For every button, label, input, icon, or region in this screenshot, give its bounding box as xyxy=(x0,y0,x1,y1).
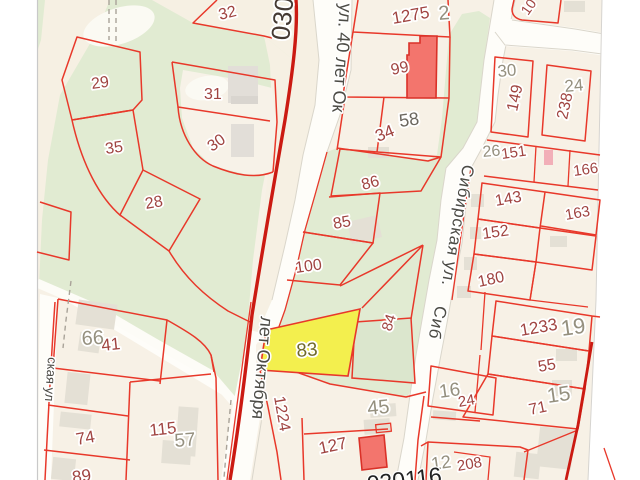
svg-text:24: 24 xyxy=(564,75,585,96)
svg-text:ская ул: ская ул xyxy=(42,357,60,402)
svg-text:35: 35 xyxy=(104,139,124,158)
svg-text:19: 19 xyxy=(559,313,587,341)
svg-text:26: 26 xyxy=(482,142,501,160)
svg-text:74: 74 xyxy=(74,427,96,449)
svg-text:57: 57 xyxy=(174,429,197,452)
svg-text:15: 15 xyxy=(545,382,571,408)
svg-text:89: 89 xyxy=(71,466,92,480)
svg-text:55: 55 xyxy=(537,356,558,376)
svg-text:99: 99 xyxy=(389,59,410,79)
svg-text:115: 115 xyxy=(148,418,177,440)
svg-text:24: 24 xyxy=(457,391,476,411)
svg-text:2: 2 xyxy=(438,2,451,25)
svg-text:41: 41 xyxy=(100,334,121,355)
svg-text:31: 31 xyxy=(204,86,222,103)
svg-text:166: 166 xyxy=(572,160,599,180)
svg-text:151: 151 xyxy=(500,143,527,163)
svg-text:83: 83 xyxy=(296,339,319,362)
svg-text:30: 30 xyxy=(497,60,518,81)
svg-text:58: 58 xyxy=(398,108,421,131)
svg-text:29: 29 xyxy=(90,74,110,93)
svg-text:45: 45 xyxy=(366,396,390,420)
svg-text:85: 85 xyxy=(332,213,353,233)
svg-text:28: 28 xyxy=(144,193,165,213)
svg-text:71: 71 xyxy=(527,399,548,419)
